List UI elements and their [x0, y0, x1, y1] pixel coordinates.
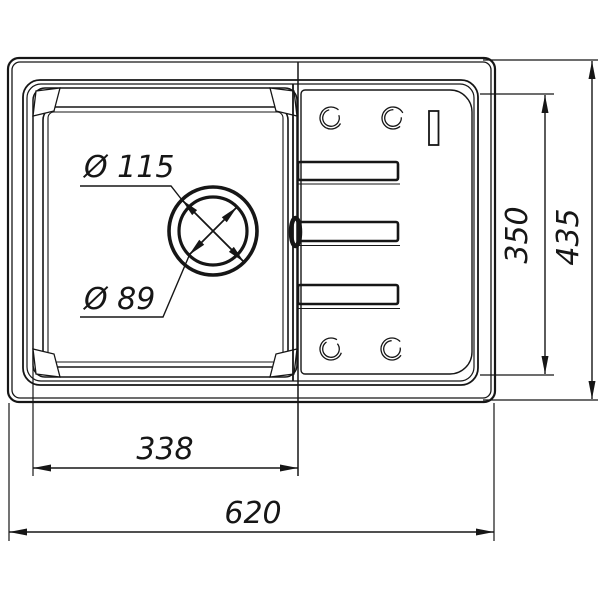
drainboard-grooves: [298, 162, 400, 309]
label-drain-inner-diameter: Ø 89: [82, 282, 155, 317]
label-overall-width: 620: [224, 496, 281, 531]
sink-outer-contour: [8, 58, 495, 402]
label-overall-height: 435: [551, 208, 586, 265]
label-drain-outer-diameter: Ø 115: [82, 150, 174, 185]
rectangular-knockout-slot: [429, 111, 439, 145]
sink-inner-rim: [23, 80, 478, 385]
sink-dimension-drawing: Ø 115 Ø 89 338 620 350 435: [0, 0, 600, 600]
drain-diameter-arrows: [182, 200, 244, 262]
faucet-knockout-holes: [316, 103, 409, 365]
label-inner-height: 350: [500, 206, 535, 263]
bowl-drainboard-divider: [293, 62, 298, 476]
drawing-canvas: Ø 115 Ø 89 338 620 350 435: [0, 0, 600, 600]
label-bowl-width: 338: [136, 432, 193, 467]
drainboard-panel: [301, 90, 472, 374]
overflow-hole: [291, 218, 300, 246]
